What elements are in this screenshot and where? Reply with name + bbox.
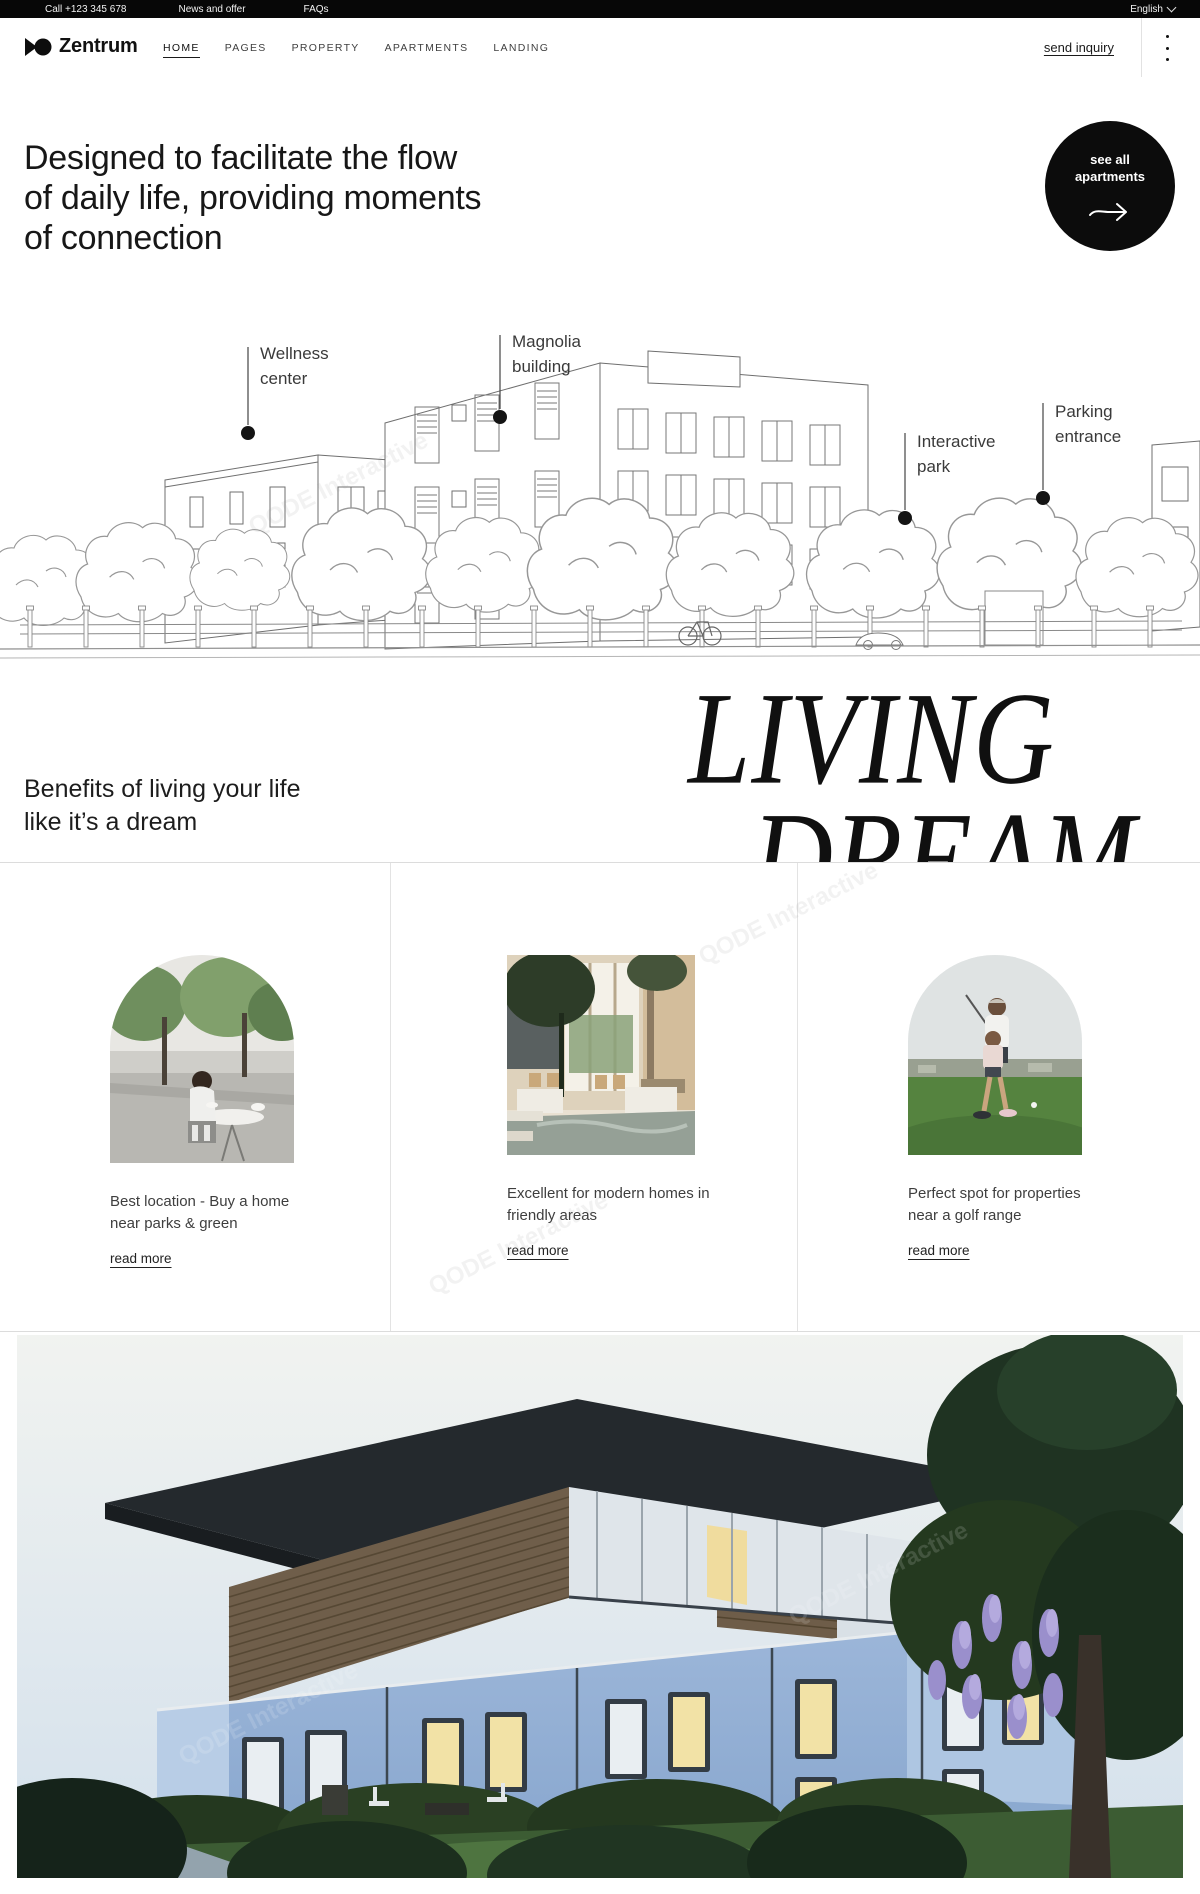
benefits-heading-line1: Benefits of living your life — [24, 773, 301, 806]
cta-label-line1: see all — [1090, 151, 1130, 168]
page: Call +123 345 678 News and offer FAQs En… — [0, 0, 1200, 1894]
hero-heading-line1: Designed to facilitate the flow — [24, 138, 481, 178]
read-more-link[interactable]: read more — [908, 1243, 970, 1258]
card-image-golf — [908, 955, 1082, 1155]
display-word-dream: DREAM — [752, 800, 1136, 862]
chevron-down-icon — [1167, 3, 1177, 13]
logo-icon — [24, 37, 52, 57]
benefit-card-golf: Perfect spot for properties near a golf … — [797, 863, 1200, 1331]
display-word-living: LIVING — [688, 680, 1055, 798]
hero-heading-line3: of connection — [24, 218, 481, 258]
site-plan-svg: Wellness center Magnolia building Intera… — [0, 295, 1200, 665]
language-selector[interactable]: English — [1130, 0, 1175, 18]
card-image-cafe — [110, 955, 294, 1163]
label-interactive-park: Interactive park — [917, 432, 1000, 476]
benefit-cards-section: Best location - Buy a home near parks & … — [0, 862, 1200, 1332]
label-wellness-center: Wellness center — [260, 344, 333, 388]
send-inquiry-link[interactable]: send inquiry — [1044, 40, 1114, 55]
nav-item-property[interactable]: PROPERTY — [292, 42, 360, 58]
nav-item-home[interactable]: HOME — [163, 42, 200, 58]
brand-logo[interactable]: Zentrum — [24, 35, 138, 58]
topbar-faqs-link[interactable]: FAQs — [304, 4, 329, 15]
benefit-card-modern-homes: Excellent for modern homes in friendly a… — [390, 863, 797, 1331]
language-label: English — [1130, 4, 1163, 15]
nav-item-apartments[interactable]: APARTMENTS — [385, 42, 469, 58]
main-nav: Zentrum HOME PAGES PROPERTY APARTMENTS L… — [0, 18, 1200, 77]
nav-menu: HOME PAGES PROPERTY APARTMENTS LANDING — [163, 42, 549, 58]
card-image-courtyard — [507, 955, 695, 1155]
benefits-heading-line2: like it’s a dream — [24, 806, 301, 839]
nav-divider — [1141, 18, 1142, 77]
topbar: Call +123 345 678 News and offer FAQs En… — [0, 0, 1200, 18]
read-more-link[interactable]: read more — [110, 1251, 172, 1266]
benefits-heading: Benefits of living your life like it’s a… — [24, 773, 301, 839]
nav-item-pages[interactable]: PAGES — [225, 42, 267, 58]
card-title: Excellent for modern homes in friendly a… — [507, 1183, 797, 1227]
building-photo — [17, 1335, 1183, 1878]
brand-name: Zentrum — [59, 35, 138, 58]
label-parking-entrance: Parking entrance — [1055, 402, 1121, 446]
arrow-right-icon — [1087, 197, 1133, 221]
label-magnolia-building: Magnolia building — [512, 332, 586, 376]
card-title: Best location - Buy a home near parks & … — [110, 1191, 390, 1235]
cta-label-line2: apartments — [1075, 168, 1145, 185]
read-more-link[interactable]: read more — [507, 1243, 569, 1258]
topbar-phone-link[interactable]: Call +123 345 678 — [45, 4, 126, 15]
site-plan-illustration: Wellness center Magnolia building Intera… — [0, 295, 1200, 665]
hero-heading: Designed to facilitate the flow of daily… — [24, 138, 481, 258]
see-all-apartments-button[interactable]: see all apartments — [1045, 121, 1175, 251]
card-title: Perfect spot for properties near a golf … — [908, 1183, 1200, 1227]
nav-item-landing[interactable]: LANDING — [493, 42, 549, 58]
benefit-card-location: Best location - Buy a home near parks & … — [0, 863, 390, 1331]
hero-heading-line2: of daily life, providing moments — [24, 178, 481, 218]
kebab-menu-icon[interactable] — [1160, 35, 1174, 61]
building-photo-svg — [17, 1335, 1183, 1878]
topbar-news-link[interactable]: News and offer — [178, 4, 245, 15]
